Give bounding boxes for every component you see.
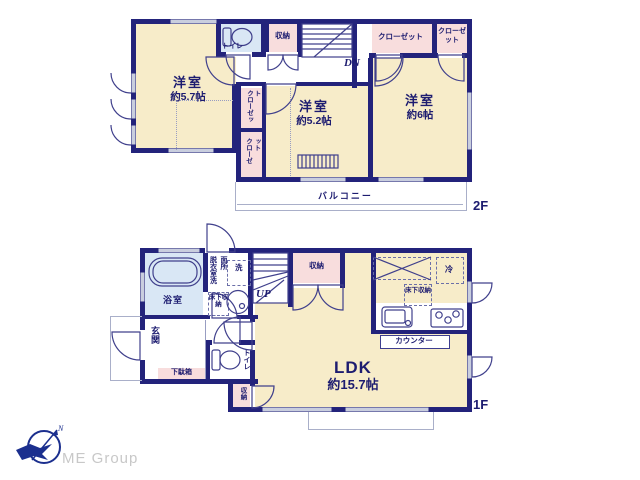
fixtures-overlay xyxy=(0,0,640,480)
door-arc xyxy=(283,55,298,70)
room-label-1f-ldk: LDK 約15.7帖 xyxy=(305,358,401,392)
door-arc xyxy=(252,386,274,408)
window-arc xyxy=(111,73,131,93)
stairs-2f xyxy=(302,24,352,57)
label-2f-toilet: トイレ xyxy=(222,43,243,51)
door-arc xyxy=(376,55,402,81)
label-1f-storage-hall: 収納 xyxy=(293,262,340,271)
label-2f-storage: 収納 xyxy=(275,32,290,41)
room-label-2f-bedroom57: 洋室 約5.7帖 xyxy=(146,76,230,103)
door-arc xyxy=(375,58,403,86)
window-arc xyxy=(111,125,131,145)
label-1f-bath: 浴室 xyxy=(163,295,183,305)
kitchen-sink-icon xyxy=(382,307,412,327)
door-arc xyxy=(207,224,235,252)
basin-icon xyxy=(227,291,249,314)
door-arc xyxy=(318,285,343,310)
label-2f-closet-mid: クローゼット xyxy=(245,90,260,128)
label-2f-closet-wide: クローゼット xyxy=(378,33,423,42)
stove-icon xyxy=(431,309,463,327)
door-arc xyxy=(268,55,283,70)
label-2f-dn: DN xyxy=(344,57,360,70)
label-1f-floor: 1F xyxy=(473,398,488,413)
window-arc xyxy=(111,99,131,119)
label-2f-closet-small: クローゼット xyxy=(438,27,466,45)
label-1f-storage-small: 収納 xyxy=(237,387,247,405)
label-2f-closet-low: クローゼット xyxy=(243,138,260,168)
window-arc xyxy=(472,357,492,377)
door-arc xyxy=(112,332,140,360)
window-arc xyxy=(472,283,492,303)
company-logo-text: ME Group xyxy=(62,450,138,467)
door-arc xyxy=(214,317,240,343)
bathtub-icon xyxy=(149,258,201,286)
label-1f-dressing-washroom: 脱衣室洗面所 xyxy=(207,256,228,286)
label-1f-underfloor-wash: 床下収納 xyxy=(208,294,229,309)
room-label-2f-bedroom52: 洋室 約5.2帖 xyxy=(272,100,356,127)
label-1f-washer: 洗 xyxy=(235,264,243,273)
label-2f-floor: 2F xyxy=(473,199,488,214)
floor-plan: 洋室 約5.7帖 洋室 約5.2帖 洋室 約6帖 トイレ 収納 DN クローゼッ… xyxy=(0,0,640,480)
label-1f-underfloor-kitchen: 床下収納 xyxy=(404,287,432,294)
label-1f-counter: カウンター xyxy=(380,337,448,346)
svg-text:N: N xyxy=(57,424,64,433)
ladder-icon xyxy=(298,155,338,168)
label-1f-up: UP xyxy=(256,288,271,301)
cabinet-x-lines xyxy=(373,257,431,280)
door-arc xyxy=(438,55,464,81)
toilet-icon-1f xyxy=(212,350,240,370)
label-1f-fridge: 冷 xyxy=(445,265,453,274)
door-arc xyxy=(293,285,318,310)
label-1f-entrance: 玄関 xyxy=(149,326,162,356)
door-arc xyxy=(224,322,252,350)
label-2f-balcony: バルコニー xyxy=(318,191,373,201)
label-1f-toilet: トイレ xyxy=(241,349,251,377)
label-1f-shoe-cabinet: 下駄箱 xyxy=(158,369,205,377)
room-label-2f-bedroom6: 洋室 約6帖 xyxy=(378,94,462,121)
